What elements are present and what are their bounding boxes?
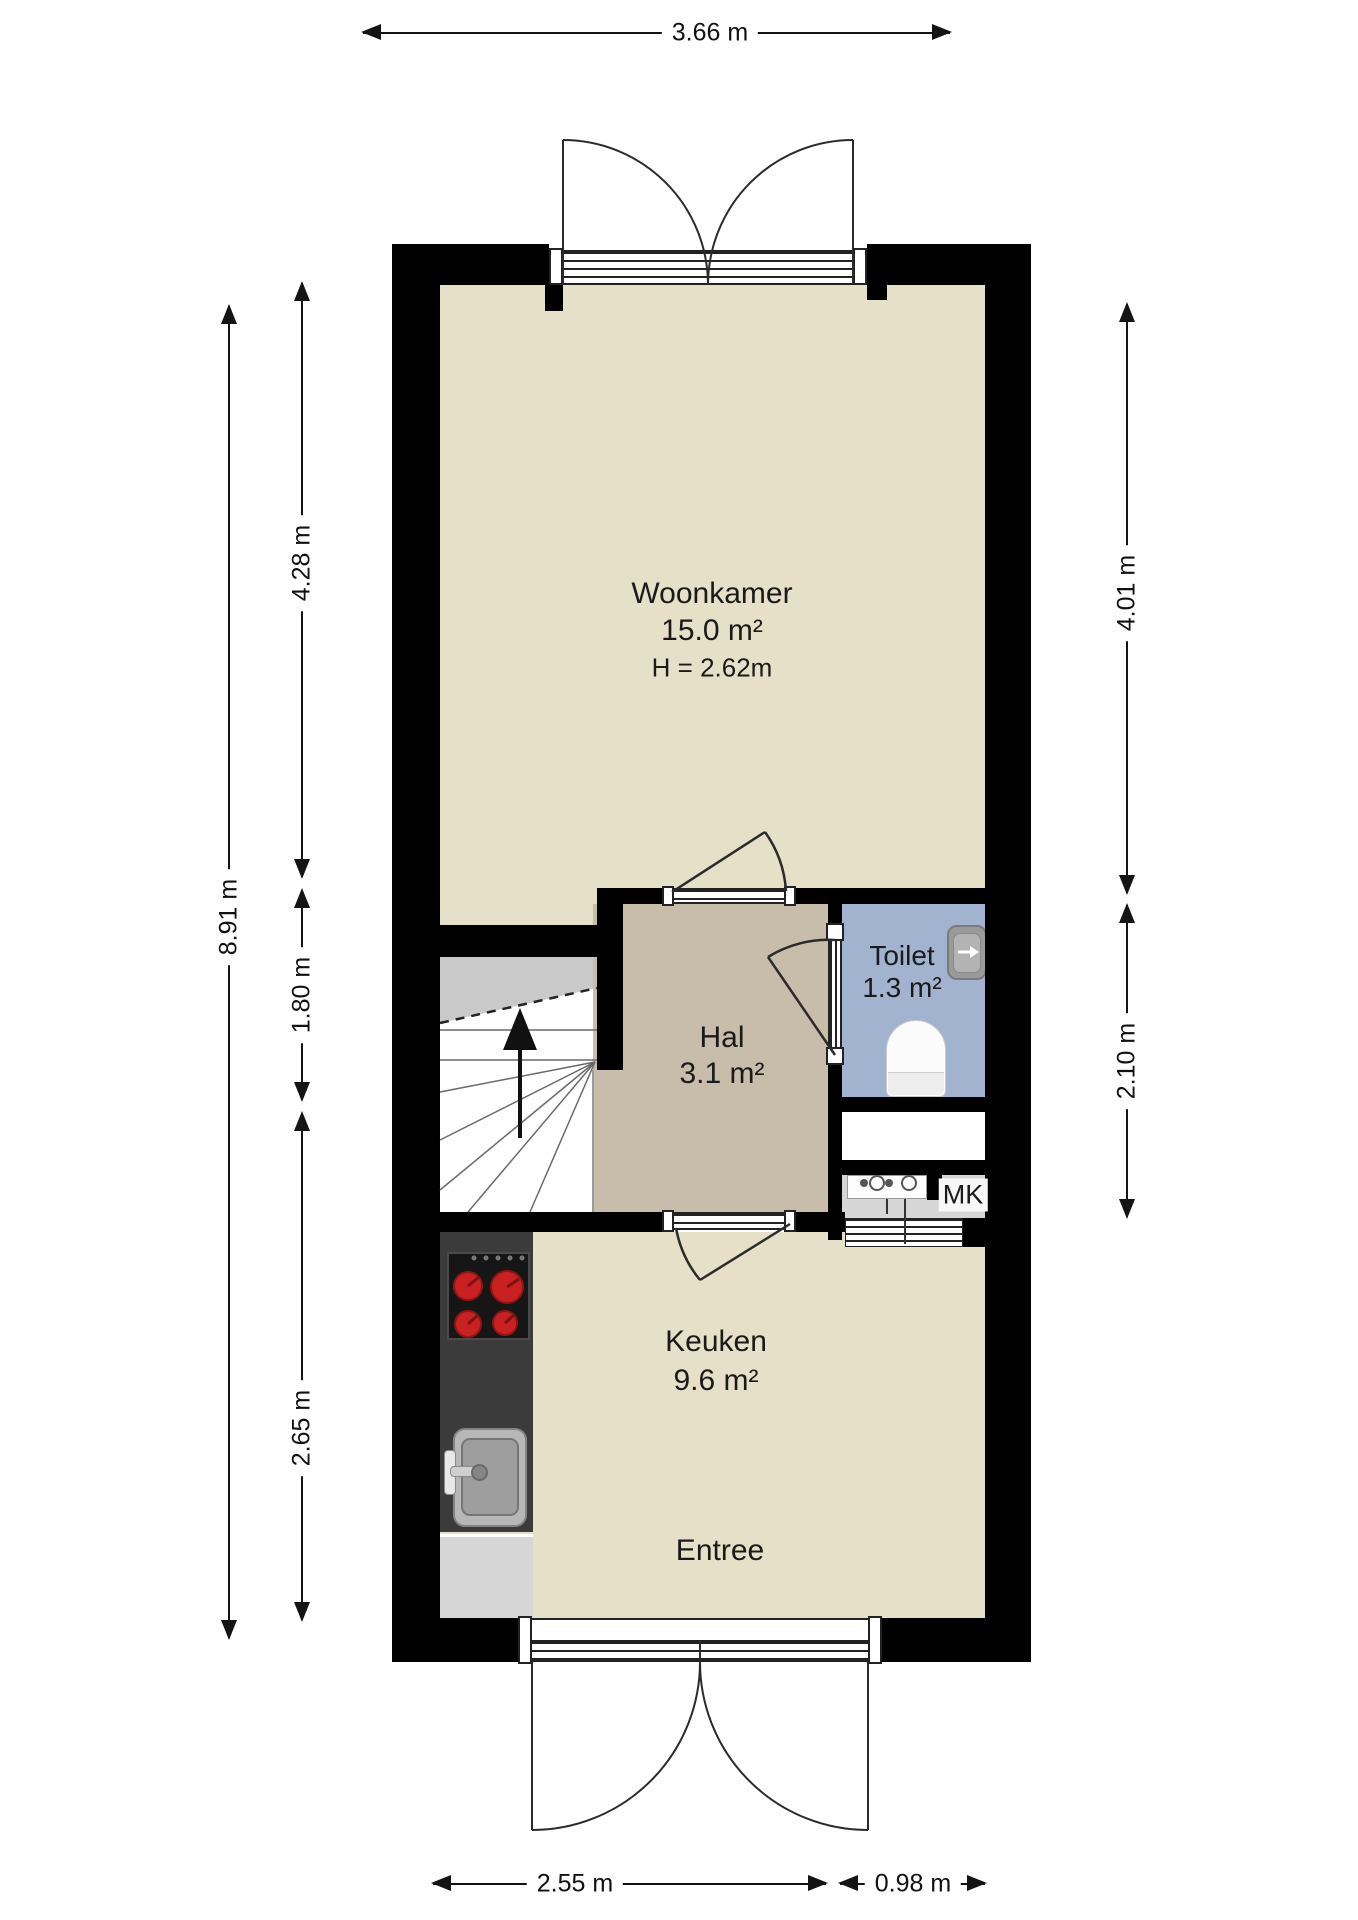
- entree-label: Entree: [676, 1534, 764, 1568]
- wall-niche-south: [842, 1160, 985, 1175]
- hal-north-door-frame-right: [784, 886, 796, 906]
- top-door-glazing: [563, 250, 853, 285]
- hal-south-door-frame-left: [662, 1210, 674, 1232]
- dim-bottom-left: 2.55 m: [433, 1883, 826, 1885]
- hal-south-door-frame-right: [784, 1210, 796, 1232]
- bottom-door-frame-right: [868, 1616, 882, 1664]
- dim-bottom-right: 0.98 m: [840, 1883, 985, 1885]
- niche-floor: [842, 1112, 985, 1160]
- meter-panel: [847, 1175, 927, 1199]
- top-door-frame-left: [549, 248, 563, 285]
- dim-left-middle-label: 1.80 m: [284, 947, 321, 1043]
- wall-jamb-top-left: [545, 285, 563, 311]
- toilet-seat-line: [888, 1072, 944, 1095]
- bottom-french-doors: [532, 1640, 868, 1830]
- toilet-label: Toilet: [869, 940, 934, 972]
- dim-left-middle: 1.80 m: [301, 890, 303, 1100]
- wall-mk-door-end: [963, 1218, 985, 1247]
- bottom-door-glazing-top: [532, 1618, 868, 1640]
- wall-jamb-top-right: [867, 285, 887, 300]
- hand-basin-bowl: [953, 933, 981, 973]
- toilet-door-frame-top: [826, 923, 844, 941]
- wall-stairs-north: [440, 925, 623, 957]
- dim-right-lower-label: 2.10 m: [1109, 1013, 1146, 1109]
- top-door-frame-right: [853, 248, 867, 285]
- wall-bottom-right: [882, 1618, 1031, 1662]
- hal-label: Hal: [699, 1021, 744, 1055]
- dim-left-lower: 2.65 m: [301, 1113, 303, 1620]
- woonkamer-label: Woonkamer: [631, 577, 792, 611]
- dim-left-lower-label: 2.65 m: [284, 1380, 321, 1476]
- dim-right-upper: 4.01 m: [1126, 304, 1128, 893]
- sink-drain: [471, 1464, 488, 1481]
- bottom-door-frame-left: [518, 1616, 532, 1664]
- woonkamer-area: 15.0 m²: [661, 614, 763, 648]
- dim-left-total: 8.91 m: [228, 306, 230, 1638]
- floorplan-canvas: Woonkamer 15.0 m² H = 2.62m Hal 3.1 m² T…: [0, 0, 1358, 1920]
- toilet-area: 1.3 m²: [862, 972, 941, 1004]
- sink-basin: [461, 1438, 519, 1516]
- meterkast-door: [845, 1218, 963, 1247]
- cooktop: [447, 1252, 530, 1340]
- wall-bottom-left: [392, 1618, 518, 1662]
- toilet-door-threshold: [828, 941, 842, 1047]
- dim-left-upper-label: 4.28 m: [284, 515, 321, 611]
- keuken-label: Keuken: [665, 1325, 767, 1359]
- dim-left-upper: 4.28 m: [301, 283, 303, 877]
- wall-left: [392, 244, 440, 1662]
- toilet-door-frame-bottom: [826, 1047, 844, 1065]
- keuken-area: 9.6 m²: [673, 1364, 758, 1398]
- wall-keuken-north-left: [392, 1212, 662, 1232]
- dim-top-width-label: 3.66 m: [662, 17, 758, 50]
- bottom-door-glazing: [532, 1640, 868, 1662]
- dim-top-width: 3.66 m: [363, 32, 950, 34]
- dim-bottom-left-label: 2.55 m: [527, 1868, 623, 1901]
- wall-toilet-south: [842, 1097, 985, 1112]
- wall-stairs-hal-divider: [597, 888, 623, 1070]
- hal-area: 3.1 m²: [679, 1057, 764, 1091]
- dim-right-upper-label: 4.01 m: [1109, 545, 1146, 641]
- hal-north-door-threshold: [674, 888, 784, 904]
- dim-right-lower: 2.10 m: [1126, 905, 1128, 1217]
- hal-south-door-threshold: [674, 1212, 784, 1230]
- meterkast-label: MK: [939, 1179, 988, 1212]
- wall-right: [985, 244, 1031, 1662]
- hal-north-door-frame-left: [662, 886, 674, 906]
- wall-top-left: [392, 244, 549, 285]
- dim-left-total-label: 8.91 m: [211, 869, 248, 965]
- kitchen-cabinet: [440, 1534, 533, 1618]
- woonkamer-height: H = 2.62m: [652, 653, 773, 684]
- wall-hal-north-right: [796, 888, 985, 904]
- dim-bottom-right-label: 0.98 m: [865, 1868, 961, 1901]
- wall-keuken-north-right: [796, 1212, 845, 1232]
